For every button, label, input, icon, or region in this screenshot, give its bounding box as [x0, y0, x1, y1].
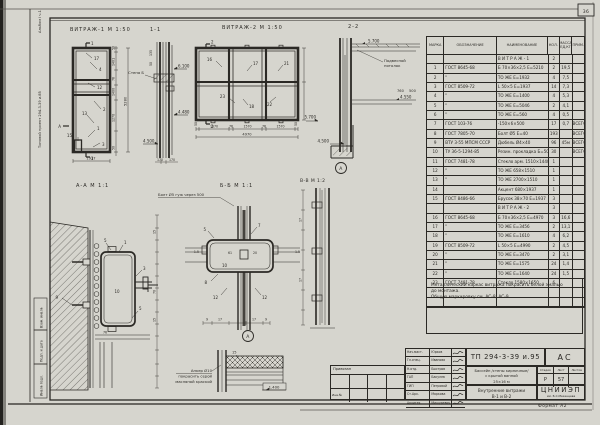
sheet-label: Лист	[554, 367, 570, 373]
dim-label: 50	[112, 146, 116, 150]
signature-row: Архитек. Мишуревич	[406, 400, 465, 408]
part-mark: 4	[99, 67, 102, 72]
cell-mark: 3	[427, 83, 444, 91]
cell-note	[573, 260, 584, 268]
cell-designation: ГОСТ 8509-72	[444, 83, 497, 91]
section-1-1: 1-1 6.100 4.480 4.500 Стена Б 135 50 170…	[128, 27, 190, 164]
signature-row: Н.отд. Быстров	[406, 366, 465, 374]
cell-note	[573, 251, 584, 259]
part-mark: 10	[114, 289, 120, 294]
signature-name: Петровой	[430, 383, 452, 390]
sheets-label: Листов	[569, 367, 584, 373]
dim-label: 170	[169, 158, 175, 162]
dim-label: 61	[228, 251, 232, 255]
part-mark: 7	[258, 223, 261, 228]
cell-name: L 50×5 Е=4990	[497, 242, 549, 250]
cell-mark: 5	[427, 102, 444, 110]
cell-mass: 4,1	[560, 102, 572, 110]
document-number: ТП 294-3-39 и.95	[466, 348, 545, 366]
cell-note: ВСЕГО	[573, 139, 584, 147]
level-mark: 5.700	[368, 39, 380, 44]
part-mark: 10	[222, 263, 228, 268]
cell-name: ТО ЖЕ Е=560	[497, 111, 549, 119]
cell-name: ТО ЖЕ Е=1610	[497, 232, 549, 240]
cell-designation: "	[444, 74, 497, 82]
part-mark: 12	[97, 85, 103, 90]
cell-mass	[560, 130, 572, 138]
part-mark: 5	[104, 238, 107, 243]
cell-designation	[444, 55, 497, 63]
part-mark: 2	[103, 107, 106, 112]
cell-mass: 4,5	[560, 242, 572, 250]
cell-name: ТО ЖЕ Е=3456	[497, 223, 549, 231]
cell-name: -150×6×500	[497, 120, 549, 128]
dim-total-label: 4970	[242, 133, 252, 137]
spec-table-header: МАРКА ОБОЗНАЧЕНИЕ НАИМЕНОВАНИЕ КОЛ. МАСС…	[427, 37, 584, 55]
signature-autograph	[452, 383, 465, 390]
dim-label: 76	[229, 125, 233, 129]
gasket-spring	[94, 244, 99, 329]
cell-mark: 14	[427, 186, 444, 194]
part-mark: 5	[203, 227, 206, 232]
col-header: МАССА ЕД,КГ	[560, 37, 573, 54]
cell-name: Стекло арм. 1510×1440	[497, 158, 549, 166]
anchor-note-line: покрасить серой	[178, 374, 212, 379]
cell-designation: ГОСТ 103-76	[444, 120, 497, 128]
dim-label: 50	[194, 122, 198, 126]
cell-designation: ГОСТ 8486-66	[444, 195, 497, 203]
album-note: Альбом I ч.1	[38, 10, 42, 33]
part-mark: 15	[67, 133, 73, 138]
cell-name: Болт Ø5 Е=40	[497, 130, 549, 138]
level-mark: 6.100	[178, 64, 190, 69]
signature-autograph	[452, 349, 465, 356]
part-mark: 16	[207, 57, 213, 62]
table-row: 8 ГОСТ 7805-70 Болт Ø5 Е=40 193 ВСЕГО	[427, 130, 584, 139]
cell-qty: 4	[549, 92, 561, 100]
sheet-title-line: В-1 и В-2	[467, 394, 536, 400]
anchor-note-line: Анкер Ø10	[191, 368, 213, 373]
cell-qty: 96	[549, 139, 561, 147]
cell-qty: 4	[549, 74, 561, 82]
dim-label: 1570	[276, 125, 284, 129]
cell-note	[573, 74, 584, 82]
note-line: Общую маркировку см. АС-8; АС-9.	[431, 295, 580, 301]
drawing-title: ВИТРАЖ-1 М 1:50	[70, 27, 131, 33]
vitrazh1-elevation: ВИТРАЖ-1 М 1:50 17 4 12 2 13 1 3 15 1 1 …	[58, 27, 131, 163]
cell-mass	[560, 195, 572, 203]
signature-row: Нач.маст. Юрков	[406, 349, 465, 357]
part-mark: 18	[249, 104, 255, 109]
cell-mark: 17	[427, 223, 444, 231]
section-title: 2-2	[348, 24, 359, 30]
cell-designation: "	[444, 223, 497, 231]
drawing-title: ВИТРАЖ-2 М 1:50	[222, 25, 283, 31]
cell-designation: "	[444, 260, 497, 268]
level-mark: 4.550	[400, 95, 412, 100]
scanned-drawing-sheet: 36 Альбом I ч.1 Типовой проект 294-3-39 …	[0, 0, 600, 425]
dim-label: 760	[397, 89, 405, 93]
section-v-v: В-В М 1:2 17 17	[299, 178, 336, 328]
table-row: 7 ГОСТ 103-76 -150×6×500 17 0,7 ВСЕГО	[427, 120, 584, 129]
level-mark: 5.700	[305, 115, 317, 120]
signature-name: Мишуревич	[430, 400, 452, 407]
table-row: В И Т Р А Ж - 1 2	[427, 55, 584, 64]
cell-note	[573, 158, 584, 166]
cell-name: Б 70×36×2,5 Е=5210	[497, 64, 549, 72]
attachment-grid-row: Инв.№	[331, 389, 404, 402]
cell-mass: 1,5	[560, 270, 572, 278]
dim-label: 500	[409, 89, 417, 93]
cell-mark: 15	[427, 195, 444, 203]
cell-name: В И Т Р А Ж - 1	[497, 55, 549, 63]
signature-autograph	[452, 374, 465, 381]
cell-mark: 22	[427, 270, 444, 278]
signature-role: Н.отд.	[406, 366, 430, 373]
part-mark: 5	[139, 306, 142, 311]
table-row: 1 ГОСТ 8645-68 Б 70×36×2,5 Е=5210 2 19,5	[427, 64, 584, 73]
cell-name: Брусок 38×70 Е=1937	[497, 195, 549, 203]
signature-role: Гл.спец.	[406, 357, 430, 364]
col-header: ПРИМ.	[572, 37, 584, 54]
cell-name: ТО ЖЕ Е=1932	[497, 74, 549, 82]
section-title: Б-Б М 1:1	[220, 183, 253, 189]
cell-designation: "	[444, 102, 497, 110]
cell-designation: "	[444, 167, 497, 175]
cell-mass: 0,5	[560, 111, 572, 119]
cell-mark: 8	[427, 130, 444, 138]
cell-mass	[560, 148, 572, 156]
cell-mark: 7	[427, 120, 444, 128]
cell-mass	[560, 176, 572, 184]
table-row: В И Т Р А Ж - 2 3	[427, 204, 584, 213]
cell-mass: 6,2	[560, 232, 572, 240]
signature-role: ГАП	[406, 374, 430, 381]
cell-mass	[560, 167, 572, 175]
cell-name: ТО ЖЕ 658×1510	[497, 167, 549, 175]
attachment-block: Привязан Инв.№	[330, 365, 405, 400]
level-mark: 1.400	[269, 385, 280, 390]
cell-name: Б 70×36×2,5 Е=4970	[497, 214, 549, 222]
cell-qty: 2	[549, 251, 561, 259]
general-notes: Металлический каркас витража покрасить б…	[426, 278, 583, 334]
signature-block: Нач.маст. Юрков Гл.спец. Иванова Н.отд. …	[405, 348, 466, 400]
table-row: 16 ГОСТ 8645-68 Б 70×36×2,5 Е=4970 3 16,…	[427, 214, 584, 223]
part-mark: 12	[262, 295, 268, 300]
dim-label: 17	[218, 318, 222, 322]
cell-mass	[560, 55, 572, 63]
cell-mark: 13	[427, 176, 444, 184]
table-row: 3 ГОСТ 8509-72 L 50×5 Е=1937 14 7,3	[427, 83, 584, 92]
specification-table: МАРКА ОБОЗНАЧЕНИЕ НАИМЕНОВАНИЕ КОЛ. МАСС…	[426, 36, 585, 308]
stage-sheet-block: Стадия Лист Листов Р 57	[537, 366, 585, 385]
signature-name: Бакулев	[430, 374, 452, 381]
cell-mark	[427, 55, 444, 63]
cut-mark-label: 2	[211, 40, 214, 45]
dim-label: 50	[294, 122, 298, 126]
dim-label: 1270	[112, 114, 116, 122]
signature-autograph	[452, 391, 465, 398]
cell-name: L 50×5 Е=1937	[497, 83, 549, 91]
cell-mass: 13,1	[560, 223, 572, 231]
dim-label: 1400	[112, 88, 116, 96]
signature-role: ГИП	[406, 383, 430, 390]
level-mark: 4.500	[318, 139, 330, 144]
table-row: 5 " ТО ЖЕ Е=5046 2 4,1	[427, 102, 584, 111]
sheet-title: Внутренние витражи В-1 и В-2	[466, 385, 537, 400]
col-header: НАИМЕНОВАНИЕ	[497, 37, 548, 54]
attachment-grid-row	[331, 375, 404, 389]
cell-designation: ГОСТ 7805-70	[444, 130, 497, 138]
part-mark: 22	[267, 102, 273, 107]
vitrazh2-elevation: ВИТРАЖ-2 М 1:50 16 17 21 23 18 22 2 2 50…	[194, 25, 306, 139]
cell-designation: ГОСТ 8509-72	[444, 242, 497, 250]
cell-note	[573, 204, 584, 212]
part-mark: 1	[97, 126, 100, 131]
part-mark: 21	[284, 61, 290, 66]
table-row: 13 " ТО ЖЕ 2700×1510 1	[427, 176, 584, 185]
part-mark: 23	[220, 94, 226, 99]
level-mark: 4.480	[178, 110, 190, 115]
cell-note	[573, 232, 584, 240]
table-row: 19 ГОСТ 8509-72 L 50×5 Е=4990 2 4,5	[427, 242, 584, 251]
cell-note	[573, 167, 584, 175]
cell-name: В И Т Р А Ж - 2	[497, 204, 549, 212]
dim-label: 76	[112, 77, 116, 81]
project-note: Типовой проект 294-3-39 и.85	[38, 91, 42, 149]
cell-mass: 1,4	[560, 260, 572, 268]
detail-a: А 15 Анкер Ø10 покрасить серой масляной …	[175, 331, 286, 393]
cell-qty: 193	[549, 130, 561, 138]
section-b-b: Б-Б М 1:1 Болт Ø5 гуж через 500 1.5 61 2…	[158, 183, 300, 330]
cell-note: ВСЕГО	[573, 148, 584, 156]
organization-subname: им. Б.С.Мезенцева	[538, 395, 584, 399]
inv-strip-label: Подп. и дата	[40, 340, 44, 362]
section-a-a: А-А М 1:1 10 9 5 1 3 5 76 15 70 15	[50, 183, 159, 390]
signature-name: Быстров	[430, 366, 452, 373]
part-mark: 8	[204, 280, 207, 285]
cell-mark: 9	[427, 139, 444, 147]
cell-note	[573, 223, 584, 231]
cell-qty: 3	[549, 195, 561, 203]
part-mark: 17	[94, 56, 100, 61]
cell-mass: 16,6	[560, 214, 572, 222]
table-row: 12 " ТО ЖЕ 658×1510 1	[427, 167, 584, 176]
cell-qty: 2	[549, 64, 561, 72]
signature-role: Ст.Арх.	[406, 391, 430, 398]
cell-qty: 17	[549, 120, 561, 128]
cell-qty: 4	[549, 232, 561, 240]
cell-designation: ГОСТ 7481-78	[444, 158, 497, 166]
cell-note	[573, 92, 584, 100]
wall-label: Стена Б	[128, 70, 144, 75]
cell-note	[573, 111, 584, 119]
cell-mass: 7,3	[560, 83, 572, 91]
cell-designation: "	[444, 270, 497, 278]
part-mark: 17	[253, 61, 259, 66]
stage-label: Стадия	[538, 367, 554, 373]
signature-autograph	[452, 400, 465, 407]
part-mark: 15	[232, 351, 237, 355]
table-row: 2 " ТО ЖЕ Е=1932 4 7,5	[427, 74, 584, 83]
cell-mark	[427, 204, 444, 212]
cell-qty: 1	[549, 176, 561, 184]
document-code: АС	[545, 348, 585, 366]
cell-qty: 1	[549, 167, 561, 175]
dim-label: 76	[103, 331, 107, 335]
dim-label: 9	[206, 318, 208, 322]
table-row: 14 Акцент 680×1937 1	[427, 186, 584, 195]
bolt-note: Болт Ø5 гуж через 500	[158, 192, 205, 197]
cell-qty: 30	[549, 148, 561, 156]
cell-mark: 16	[427, 214, 444, 222]
organization-block: ЦНИИЭП им. Б.С.Мезенцева	[537, 385, 585, 400]
cell-mass: 5,3	[560, 92, 572, 100]
cell-name: ТО ЖЕ Е=1400	[497, 92, 549, 100]
part-mark: 13	[82, 111, 88, 116]
cell-qty: 3	[549, 214, 561, 222]
dim-label: 17	[299, 278, 303, 282]
dim-total-label: 5280	[124, 96, 128, 106]
dim-label: 50	[149, 62, 153, 66]
inv-strip-label: Взам. инв.№	[40, 307, 44, 328]
table-row: 9 ВТУ 3-55 МПСМ СССР Дюбель Ø4×40 96 45м…	[427, 139, 584, 148]
cell-designation: "	[444, 92, 497, 100]
cell-designation: ВТУ 3-55 МПСМ СССР	[444, 139, 497, 147]
table-row: 6 " ТО ЖЕ Е=560 4 0,5	[427, 111, 584, 120]
cell-designation: "	[444, 251, 497, 259]
sheet-number: 36	[583, 9, 590, 15]
cell-designation: ГОСТ 8645-68	[444, 214, 497, 222]
cell-note	[573, 270, 584, 278]
cell-designation: ГОСТ 8645-68	[444, 64, 497, 72]
dim-label: 70	[153, 290, 157, 294]
part-mark: 1	[124, 240, 127, 245]
cell-note	[573, 55, 584, 63]
part-mark: 3	[143, 266, 146, 271]
format-note: Формат А2	[538, 404, 567, 409]
part-mark: 12	[213, 295, 219, 300]
cell-name: ТО ЖЕ Е=3470	[497, 251, 549, 259]
detail-ref-bubble: А	[339, 166, 343, 172]
signature-name: Юрков	[430, 349, 452, 356]
cell-mass: 0,7	[560, 120, 572, 128]
cell-note	[573, 64, 584, 72]
cell-designation: "	[444, 111, 497, 119]
dim-label: 15	[153, 230, 157, 234]
table-row: 17 " ТО ЖЕ Е=3456 2 13,1	[427, 223, 584, 232]
cell-note	[573, 176, 584, 184]
cell-qty: 2	[549, 55, 561, 63]
spec-table-body: В И Т Р А Ж - 1 2 1 ГОСТ 8645-68 Б 70×36…	[427, 55, 584, 307]
cell-mark: 19	[427, 242, 444, 250]
table-row: 18 " ТО ЖЕ Е=1610 4 6,2	[427, 232, 584, 241]
section-title: А-А М 1:1	[76, 183, 109, 189]
cell-designation: "	[444, 176, 497, 184]
cell-mass: 45м	[560, 139, 572, 147]
cell-note	[573, 186, 584, 194]
signature-row: Ст.Арх. Маркова	[406, 391, 465, 399]
cell-note	[573, 83, 584, 91]
cell-mass	[560, 186, 572, 194]
cell-mark: 20	[427, 251, 444, 259]
col-header: МАРКА	[427, 37, 444, 54]
table-row: 20 " ТО ЖЕ Е=3470 2 3,1	[427, 251, 584, 260]
table-row: 11 ГОСТ 7481-78 Стекло арм. 1510×1440 1	[427, 158, 584, 167]
table-row: 4 " ТО ЖЕ Е=1400 4 5,3	[427, 92, 584, 101]
part-mark: 3	[102, 142, 105, 147]
cell-designation: ТУ 36-5-1294-85	[444, 148, 497, 156]
dim-label: 50	[112, 46, 116, 50]
inventory-label: Инв.№	[331, 389, 350, 402]
dim-label: 1570	[243, 125, 251, 129]
dim-label: 1.5	[295, 250, 300, 254]
signature-name: Иванова	[430, 357, 452, 364]
attachment-label: Привязан	[331, 366, 404, 375]
cell-qty: 24	[549, 270, 561, 278]
table-row: 21 " ТО ЖЕ Е=1575 24 1,4	[427, 260, 584, 269]
cell-mark: 4	[427, 92, 444, 100]
col-header: ОБОЗНАЧЕНИЕ	[444, 37, 496, 54]
dim-label: 135	[149, 50, 153, 56]
dim-label: 1570	[210, 125, 218, 129]
cell-qty: 2	[549, 223, 561, 231]
cell-mark: 21	[427, 260, 444, 268]
cut-mark-label: 1	[91, 41, 94, 46]
dim-label: 17	[299, 218, 303, 222]
table-row: 15 ГОСТ 8486-66 Брусок 38×70 Е=1937 3	[427, 195, 584, 204]
cell-qty: 3	[549, 204, 561, 212]
cell-name: ТО ЖЕ 2700×1510	[497, 176, 549, 184]
cell-note: ВСЕГО	[573, 120, 584, 128]
cell-note: ВСЕГО	[573, 130, 584, 138]
cell-note	[573, 214, 584, 222]
col-header: КОЛ.	[548, 37, 560, 54]
cell-qty: 24	[549, 260, 561, 268]
signature-autograph	[452, 366, 465, 373]
cell-designation: "	[444, 232, 497, 240]
dim-label: 17	[252, 318, 256, 322]
cell-name: ТО ЖЕ Е=5046	[497, 102, 549, 110]
signature-row: Гл.спец. Иванова	[406, 357, 465, 365]
cell-designation	[444, 204, 497, 212]
dim-label: 9	[265, 318, 267, 322]
cell-mass: 19,5	[560, 64, 572, 72]
cell-mark: 11	[427, 158, 444, 166]
cell-qty: 1	[549, 158, 561, 166]
object-name: Бассейн /стены кирпичные/ с крытой ванно…	[466, 366, 537, 385]
cell-name: Дюбель Ø4×40	[497, 139, 549, 147]
signature-name: Маркова	[430, 391, 452, 398]
cell-mark: 18	[427, 232, 444, 240]
signature-autograph	[452, 357, 465, 364]
dim-label: 1.5	[194, 250, 199, 254]
cell-name: Акцент 680×1937	[497, 186, 549, 194]
cell-mark: 6	[427, 111, 444, 119]
section-2-2: 2-2 5.700 Подвесной потолок 4.550 760 50…	[305, 24, 420, 174]
section-title: В-В М 1:2	[300, 178, 325, 184]
anchor-note-line: масляной краской	[175, 379, 212, 384]
cell-mass: 3,1	[560, 251, 572, 259]
signature-role: Нач.маст.	[406, 349, 430, 356]
cell-mark: 12	[427, 167, 444, 175]
cell-qty: 1	[549, 186, 561, 194]
margin-notes: Альбом I ч.1 Типовой проект 294-3-39 и.8…	[34, 10, 47, 398]
table-row: 10 ТУ 36-5-1294-85 Резин. прокладка Б=50…	[427, 148, 584, 157]
cut-mark-label: А	[58, 124, 61, 129]
section-title: 1-1	[150, 27, 161, 33]
signature-row: ГИП Петровой	[406, 383, 465, 391]
